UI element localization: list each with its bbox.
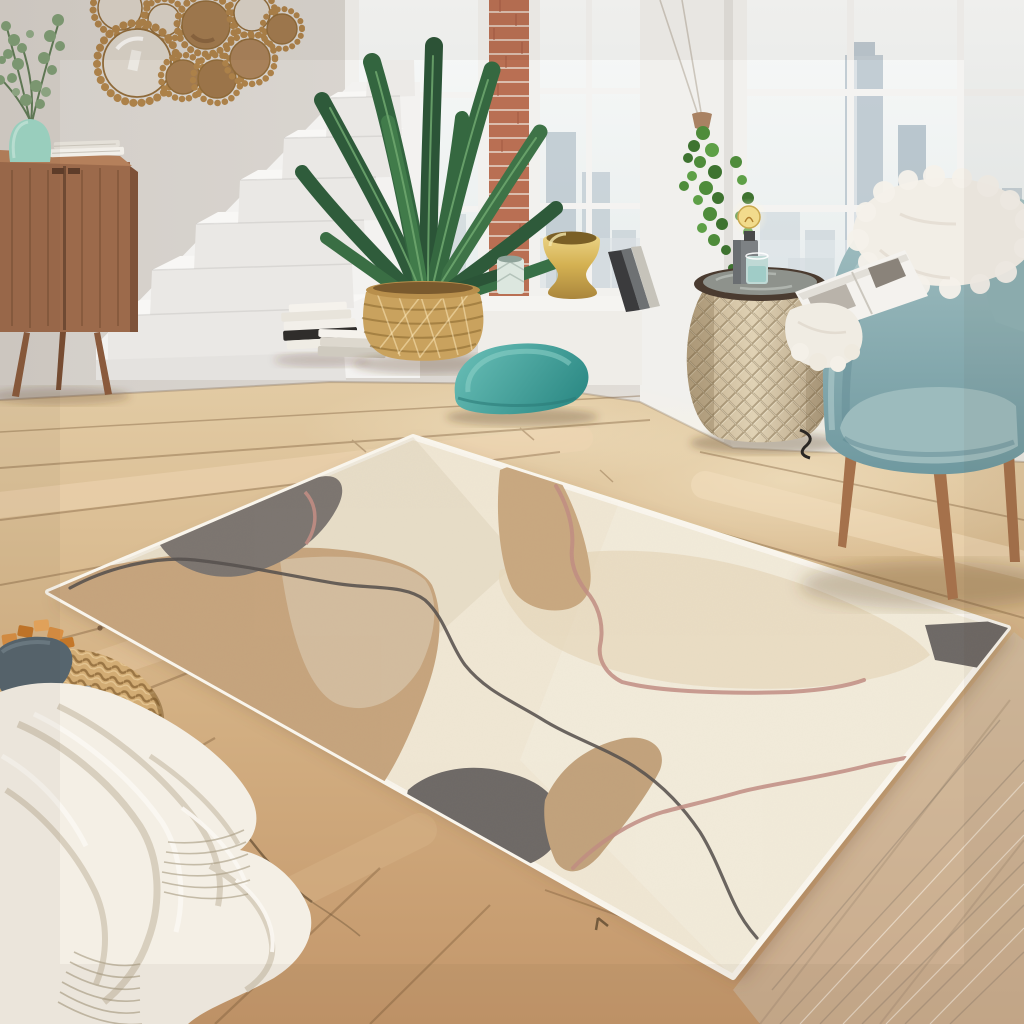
belly-basket bbox=[362, 281, 483, 361]
living-room-photo: Bright loft living room with abstract be… bbox=[0, 0, 1024, 1024]
water-glass bbox=[746, 253, 768, 284]
books-on-sideboard bbox=[50, 140, 124, 158]
candle-holder bbox=[497, 256, 524, 295]
